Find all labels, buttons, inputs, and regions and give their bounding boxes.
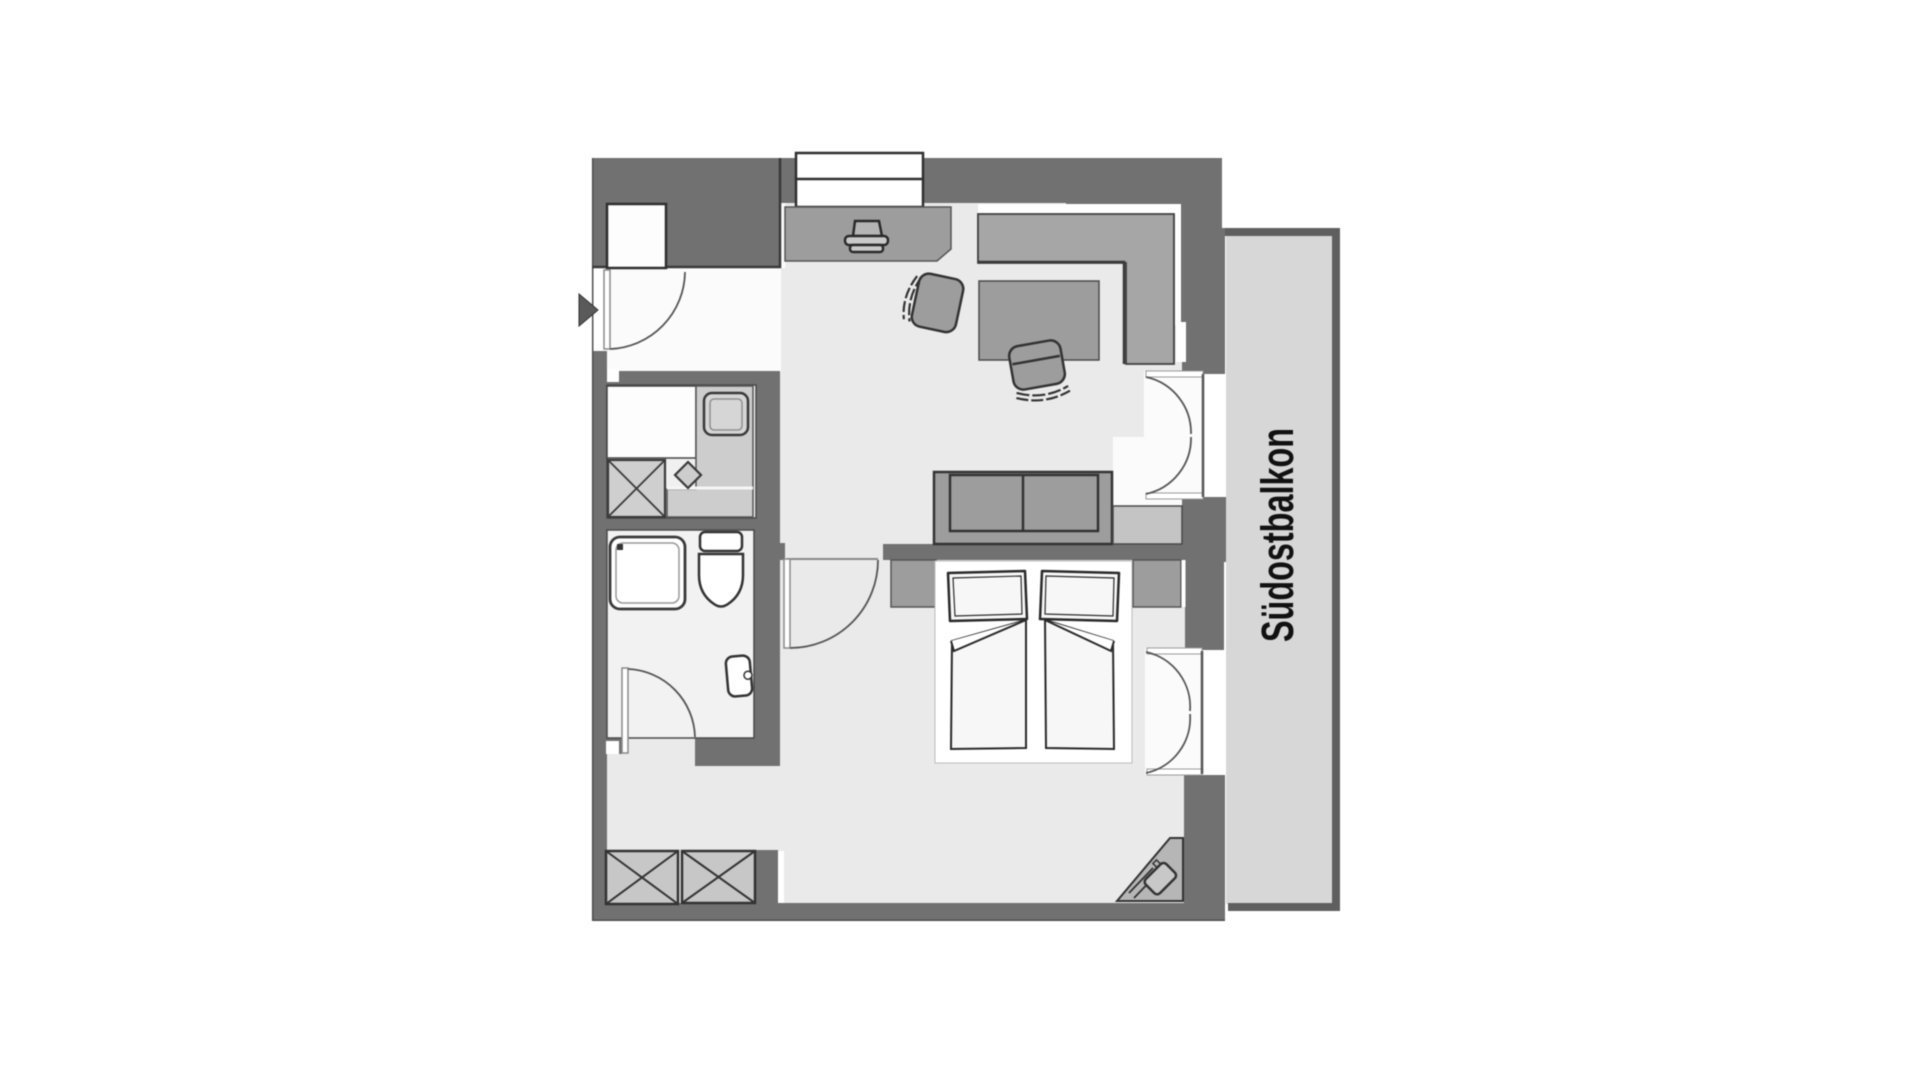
svg-text:Südostbalkon: Südostbalkon: [1254, 428, 1303, 642]
